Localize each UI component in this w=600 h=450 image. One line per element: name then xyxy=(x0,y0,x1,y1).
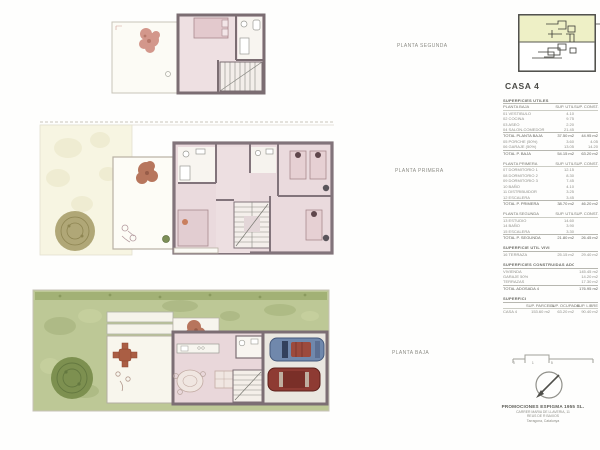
potted-plant-icon xyxy=(163,236,170,243)
garage xyxy=(263,332,327,404)
dining-table-square xyxy=(215,371,233,388)
bed xyxy=(194,18,228,38)
floor-plan-planta-segunda xyxy=(110,8,272,100)
car-blue xyxy=(270,338,324,361)
site-key-plan xyxy=(518,14,596,72)
tree-icon xyxy=(51,357,93,399)
areas-section: SUPERFICIES UTILES CASA 4PLANTA BAJASUP.… xyxy=(503,98,598,156)
area-row: 12 ESCALERA3.45 xyxy=(503,195,598,200)
area-row: CASA 4153.60 m263.20 m290.40 m2 xyxy=(503,309,598,314)
terrace xyxy=(107,336,173,403)
label-planta-segunda: PLANTA SEGUNDA xyxy=(397,43,448,49)
area-row: 15 ESCALERA3.30 xyxy=(503,229,598,234)
area-row: TOTAL P. SEGUNDA21.80 m226.45 m2 xyxy=(503,234,598,240)
built-volume xyxy=(174,143,332,253)
company-block: PROMOCIONES ESPIGMA 1955 SL. CARRER MARI… xyxy=(488,404,598,423)
area-row: 04 SALON-COMEDOR21.45 xyxy=(503,127,598,132)
areas-section: PLANTA PRIMERASUP. UTILSUP. CONST.07 DOR… xyxy=(503,161,598,206)
scale-numbers: 0 1 5 xyxy=(513,361,553,365)
company-address-line: Tarragona, Catalunya xyxy=(488,419,598,423)
house-interior xyxy=(173,332,263,404)
area-row: 16 TERRAZA25.15 m229.40 m2 xyxy=(503,252,598,257)
areas-section: PLANTA SEGUNDASUP. UTILSUP. CONST.13 EST… xyxy=(503,211,598,240)
area-row: TOTAL ADOSADA 4176.95 m2 xyxy=(503,285,598,291)
floor-plan-planta-baja xyxy=(30,286,332,414)
area-row: TOTAL P. BAJA54.15 m263.20 m2 xyxy=(503,150,598,156)
north-arrow-compass-icon xyxy=(532,368,566,402)
stair xyxy=(234,202,270,248)
kitchen-counter xyxy=(177,344,219,353)
car-red xyxy=(268,368,320,391)
aseo xyxy=(236,336,262,358)
floor-plan-planta-primera xyxy=(38,118,336,258)
drawing-sheet: PLANTA SEGUNDA PLANTA PRIMERA PLANTA BAJ… xyxy=(0,0,600,450)
keyplan-highlight xyxy=(520,16,595,42)
stair xyxy=(233,370,263,402)
hedge xyxy=(35,292,327,300)
areas-table: SUPERFICIES UTILES CASA 4PLANTA BAJASUP.… xyxy=(503,98,598,319)
sheet-title: CASA 4 xyxy=(505,81,539,91)
terrace xyxy=(113,157,173,249)
area-row: 06 GARAJE (50%)13.0514.20 xyxy=(503,144,598,149)
scale-bar xyxy=(511,350,595,370)
tree-icon xyxy=(55,211,95,251)
areas-section: SUPERFICIE DE LA PARCELA 4SUP. PARCELASU… xyxy=(503,296,598,314)
label-planta-baja: PLANTA BAJA xyxy=(392,350,429,356)
balcony xyxy=(174,248,218,253)
areas-section: SUPERFICIES CONSTRUIDAS ADOSADA 4VIVIEND… xyxy=(503,262,598,291)
built-volume xyxy=(178,15,264,93)
area-row: TOTAL P. PRIMERA38.70 m246.20 m2 xyxy=(503,200,598,206)
areas-section: SUPERFICIE UTIL VIVIENDA16 TERRAZA25.15 … xyxy=(503,245,598,257)
label-planta-primera: PLANTA PRIMERA xyxy=(395,168,444,174)
area-row: TERRAZAS17.30 m2 xyxy=(503,279,598,284)
